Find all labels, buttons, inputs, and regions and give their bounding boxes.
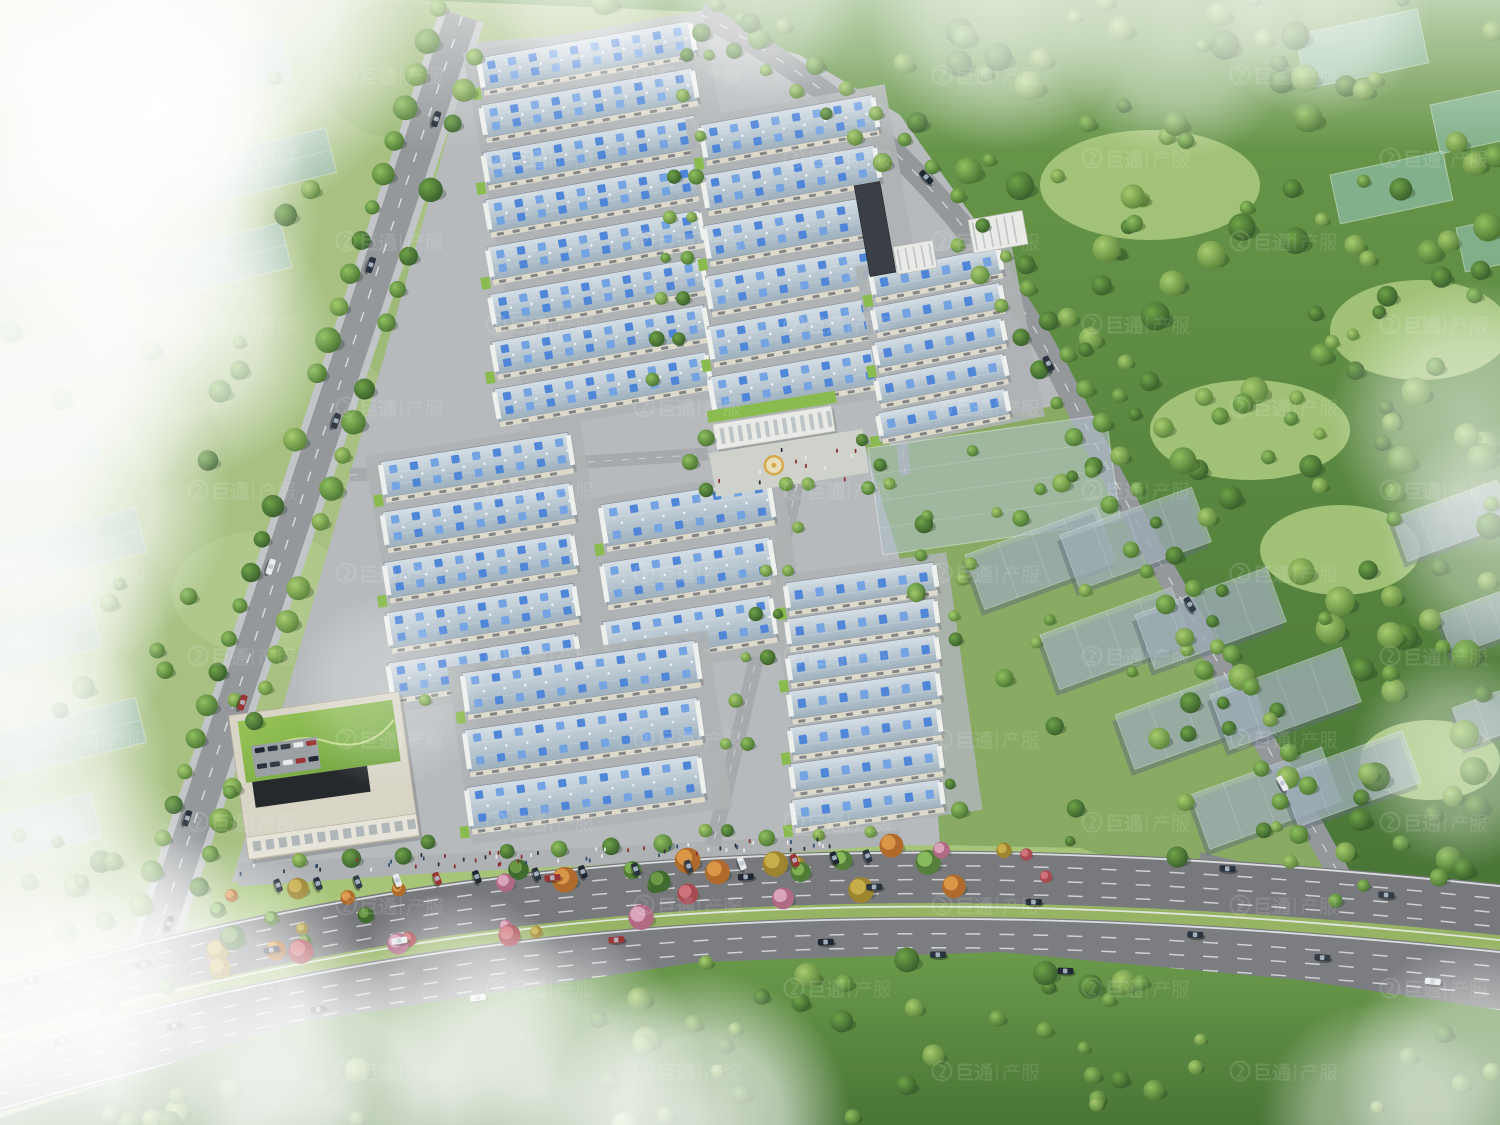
pedestrian (749, 839, 751, 843)
tree (894, 947, 919, 972)
pedestrian (819, 842, 821, 846)
watermark-suffix: 产服 (1152, 149, 1190, 171)
skylight (883, 759, 892, 769)
shopfront (330, 830, 339, 841)
skylight (536, 690, 545, 699)
skylight (540, 804, 549, 813)
skylight (513, 445, 522, 454)
skylight (783, 385, 792, 394)
tree (773, 609, 783, 619)
tree (1325, 586, 1355, 616)
tree (698, 430, 715, 447)
tree (1121, 184, 1145, 208)
skylight (754, 221, 763, 230)
pedestrian (687, 843, 689, 847)
skylight (409, 461, 418, 470)
tree (1078, 342, 1092, 356)
skylight (503, 358, 512, 367)
watermark-suffix: 产服 (1002, 564, 1040, 586)
skylight (519, 260, 528, 269)
watermark-brand: 巨通 (657, 232, 696, 254)
tree (1359, 250, 1376, 267)
skylight (760, 338, 769, 347)
tree (354, 379, 375, 400)
skylight (523, 388, 532, 397)
skylight (558, 205, 567, 214)
skylight (563, 606, 572, 615)
watermark-divider (550, 482, 552, 500)
skylight (599, 231, 608, 240)
skylight (735, 605, 744, 614)
skylight (521, 307, 530, 316)
tree (1084, 1067, 1101, 1084)
skylight (497, 515, 506, 524)
skylight (817, 176, 826, 185)
skylight (820, 277, 829, 286)
skylight (578, 684, 587, 693)
tree (1148, 728, 1170, 750)
watermark-suffix: 产服 (108, 1062, 146, 1084)
skylight (641, 190, 650, 199)
watermark-divider (1294, 67, 1296, 85)
watermark-brand: 巨通 (211, 979, 250, 1001)
tree (873, 458, 886, 471)
skylight (643, 271, 652, 280)
watermark-brand: 巨通 (61, 896, 100, 918)
skylight (900, 647, 909, 657)
skylight (737, 325, 746, 334)
watermark-brand: 巨通 (61, 66, 100, 88)
tree (686, 212, 697, 223)
tree (1046, 717, 1064, 735)
skylight (622, 275, 631, 284)
tree (1126, 215, 1143, 232)
skylight (555, 438, 564, 447)
pedestrian (736, 845, 738, 849)
tree (1012, 329, 1029, 346)
skylight (684, 264, 693, 273)
skylight (503, 391, 512, 400)
skylight (679, 646, 688, 655)
watermark-divider (550, 316, 552, 334)
tree (728, 693, 743, 708)
tree (1389, 178, 1412, 201)
skylight (794, 590, 803, 600)
skylight (560, 589, 569, 598)
skylight (919, 572, 928, 582)
skylight (686, 311, 695, 320)
skylight (515, 693, 524, 702)
skylight (588, 391, 597, 400)
skylight (967, 367, 977, 377)
watermark-divider (400, 67, 402, 85)
tree (758, 830, 775, 847)
skylight (840, 307, 849, 316)
watermark-suffix: 产服 (704, 1062, 742, 1084)
tree (646, 373, 660, 387)
cloud-fog (290, 590, 490, 790)
tree (991, 507, 1002, 518)
watermark-suffix: 产服 (258, 979, 296, 1001)
tree (856, 434, 868, 446)
tree (1222, 721, 1237, 736)
tree (1167, 846, 1188, 867)
skylight (493, 730, 502, 739)
skylight (492, 448, 501, 457)
tree (1050, 169, 1064, 183)
skylight (578, 235, 587, 244)
tree (682, 454, 699, 471)
pedestrian (787, 840, 789, 844)
pedestrian (463, 858, 465, 862)
pedestrian (743, 848, 745, 852)
tree (1211, 408, 1228, 425)
watermark-suffix: 产服 (1152, 481, 1190, 503)
watermark-suffix: 产服 (1450, 149, 1488, 171)
shopfront (317, 831, 326, 842)
skylight (542, 337, 551, 346)
tree (1176, 793, 1194, 811)
skylight (665, 787, 674, 796)
watermark-brand: 巨通 (359, 66, 398, 88)
watermark-divider (996, 897, 998, 915)
pedestrian (601, 854, 603, 858)
skylight (658, 649, 667, 658)
tree (1153, 417, 1174, 438)
watermark-suffix: 产服 (704, 232, 742, 254)
tree (1377, 622, 1403, 648)
tree (1123, 542, 1140, 559)
tree (1006, 172, 1035, 201)
watermark-suffix: 产服 (1450, 647, 1488, 669)
pedestrian (813, 844, 815, 848)
tree (1016, 255, 1035, 274)
skylight (757, 507, 766, 516)
skylight (921, 645, 930, 655)
watermark-brand: 巨通 (211, 813, 250, 835)
pedestrian (315, 864, 317, 868)
tree (1089, 1097, 1103, 1111)
watermark-divider (1444, 316, 1446, 334)
watermark-brand: 巨通 (1403, 149, 1442, 171)
skylight (902, 720, 911, 730)
watermark-brand: 巨通 (1105, 315, 1144, 337)
tree (602, 838, 620, 856)
skylight (629, 383, 638, 392)
skylight (666, 281, 675, 290)
watermark-brand: 巨通 (657, 398, 696, 420)
watermark-suffix: 产服 (1300, 730, 1338, 752)
watermark-suffix: 产服 (1152, 813, 1190, 835)
green-strip (373, 494, 384, 507)
watermark-divider (400, 565, 402, 583)
watermark-divider (102, 399, 104, 417)
skylight (477, 602, 486, 611)
pedestrian (805, 456, 807, 460)
skylight (624, 322, 633, 331)
skylight (495, 696, 504, 705)
skylight (841, 765, 850, 775)
watermark-suffix: 产服 (556, 149, 594, 171)
watermark-divider (996, 1063, 998, 1081)
pedestrian (499, 862, 501, 866)
skylight (986, 327, 996, 337)
skylight (941, 265, 951, 275)
skylight (505, 405, 514, 414)
skylight (581, 249, 590, 258)
pedestrian (521, 855, 523, 859)
skylight (752, 170, 761, 179)
skylight (457, 572, 466, 581)
skylight (620, 770, 629, 779)
watermark-brand: 巨通 (807, 481, 846, 503)
watermark-divider (1444, 150, 1446, 168)
pedestrian (803, 847, 805, 851)
skylight (537, 782, 546, 791)
skylight (516, 246, 525, 255)
skylight (650, 501, 659, 510)
skylight (523, 354, 532, 363)
pedestrian (795, 459, 797, 463)
skylight (609, 507, 618, 516)
skylight (565, 347, 574, 356)
pedestrian (658, 853, 660, 857)
tree (1242, 678, 1259, 695)
skylight (662, 764, 671, 773)
skylight (660, 707, 669, 716)
tree (1111, 1070, 1130, 1089)
tree (649, 331, 665, 347)
tree (1325, 335, 1339, 349)
skylight (661, 187, 670, 196)
skylight (824, 378, 833, 387)
watermark-brand: 巨通 (955, 564, 994, 586)
tree (1308, 306, 1324, 322)
tree (1165, 546, 1183, 564)
tree (1076, 380, 1095, 399)
watermark-brand: 巨通 (955, 66, 994, 88)
skylight (537, 458, 546, 467)
skylight (796, 180, 805, 189)
tree (994, 299, 1008, 313)
watermark-divider (848, 648, 850, 666)
skylight (580, 741, 589, 750)
watermark-brand: 巨通 (61, 730, 100, 752)
tree (1036, 1022, 1053, 1039)
skylight (560, 286, 569, 295)
skylight (557, 455, 566, 464)
watermark-divider (252, 150, 254, 168)
skylight (602, 245, 611, 254)
tree (830, 1010, 853, 1033)
skylight (686, 784, 695, 793)
watermark-brand: 巨通 (1253, 730, 1292, 752)
watermark-divider (1146, 648, 1148, 666)
skylight (435, 525, 444, 534)
skylight (599, 198, 608, 207)
tree (365, 200, 379, 214)
skylight (559, 505, 568, 514)
skylight (738, 292, 747, 301)
pedestrian (390, 860, 392, 864)
tree (1159, 270, 1185, 296)
skylight (620, 194, 629, 203)
watermark-suffix: 产服 (258, 813, 296, 835)
skylight (683, 761, 692, 770)
skylight (639, 710, 648, 719)
skylight (618, 180, 627, 189)
watermark-brand: 巨通 (61, 1062, 100, 1084)
watermark-brand: 巨通 (1403, 481, 1442, 503)
tree (660, 253, 670, 263)
skylight (412, 478, 421, 487)
skylight (620, 228, 629, 237)
pedestrian (643, 846, 645, 850)
skylight (899, 611, 908, 621)
skylight (798, 735, 807, 745)
car (818, 939, 837, 948)
skylight (514, 727, 523, 736)
watermark-suffix: 产服 (1450, 979, 1488, 1001)
tree (1272, 793, 1289, 810)
cloud-fog (340, 890, 580, 1125)
watermark-divider (102, 731, 104, 749)
skylight (638, 177, 647, 186)
tree (334, 447, 351, 464)
watermark-suffix: 产服 (1002, 66, 1040, 88)
pedestrian (735, 843, 737, 847)
skylight (514, 198, 523, 207)
watermark-brand: 巨通 (359, 398, 398, 420)
tree (1240, 201, 1254, 215)
watermark-divider (996, 233, 998, 251)
skylight (582, 798, 591, 807)
skylight (519, 293, 528, 302)
skylight (661, 672, 670, 681)
skylight (925, 789, 934, 799)
skylight (391, 515, 400, 524)
watermark-suffix: 产服 (704, 730, 742, 752)
tree (1315, 213, 1329, 227)
watermark-divider (550, 648, 552, 666)
tree (1050, 397, 1063, 410)
skylight (668, 362, 677, 371)
skylight (755, 543, 764, 552)
tree (1350, 657, 1374, 681)
skylight (391, 481, 400, 490)
tree (1175, 628, 1194, 647)
skylight (900, 273, 910, 283)
tree (1150, 517, 1162, 529)
watermark-divider (102, 897, 104, 915)
skylight (558, 539, 567, 548)
tree (1139, 371, 1159, 391)
watermark-suffix: 产服 (1300, 232, 1338, 254)
skylight (800, 365, 809, 374)
skylight (877, 578, 886, 588)
skylight (719, 346, 728, 355)
watermark-brand: 巨通 (1105, 647, 1144, 669)
watermark-brand: 巨通 (657, 730, 696, 752)
watermark-divider (400, 399, 402, 417)
watermark-brand: 巨通 (1403, 979, 1442, 1001)
skylight (411, 511, 420, 520)
tree (1312, 478, 1328, 494)
tree (1314, 428, 1326, 440)
skylight (863, 798, 872, 808)
tree (1012, 510, 1029, 527)
pedestrian (454, 864, 456, 868)
watermark-brand: 巨通 (955, 730, 994, 752)
watermark-brand: 巨通 (211, 315, 250, 337)
skylight (687, 278, 696, 287)
watermark-brand: 巨通 (657, 66, 696, 88)
tree (1020, 280, 1037, 297)
tree (377, 313, 396, 332)
watermark-brand: 巨通 (211, 149, 250, 171)
skylight (862, 762, 871, 772)
watermark-divider (252, 482, 254, 500)
skylight (497, 753, 506, 762)
tree (1283, 179, 1302, 198)
tree (186, 728, 206, 748)
watermark-divider (996, 731, 998, 749)
watermark-divider (1146, 980, 1148, 998)
pedestrian (557, 859, 559, 863)
tree (1078, 584, 1091, 597)
skylight (689, 325, 698, 334)
industrial-park-aerial-rendering: 巨通产服巨通产服巨通产服巨通产服巨通产服巨通产服巨通产服巨通产服巨通产服巨通产服… (0, 0, 1500, 1125)
skylight (414, 528, 423, 537)
skylight (432, 508, 441, 517)
watermark-brand: 巨通 (1253, 564, 1292, 586)
watermark-suffix: 产服 (1002, 730, 1040, 752)
tree (922, 1044, 944, 1066)
tree (312, 513, 330, 531)
tree (667, 170, 681, 184)
watermark-divider (698, 897, 700, 915)
skylight (608, 387, 617, 396)
tree (663, 210, 677, 224)
watermark-suffix: 产服 (1450, 813, 1488, 835)
skylight (579, 776, 588, 785)
skylight (839, 223, 848, 232)
pedestrian (752, 841, 754, 845)
pedestrian (669, 846, 671, 850)
tree (951, 801, 968, 818)
watermark-suffix: 产服 (704, 564, 742, 586)
skylight (795, 213, 804, 222)
watermark-suffix: 产服 (108, 398, 146, 420)
skylight (741, 393, 750, 402)
pedestrian (781, 448, 783, 452)
skylight (517, 750, 526, 759)
skylight (797, 698, 806, 708)
skylight (926, 375, 936, 385)
tree (655, 292, 668, 305)
skylight (857, 581, 866, 591)
watermark-suffix: 产服 (1002, 232, 1040, 254)
watermark-divider (550, 814, 552, 832)
skylight (632, 621, 641, 630)
skylight (535, 724, 544, 733)
tree (760, 564, 772, 576)
skylight (455, 555, 464, 564)
tree (1253, 761, 1269, 777)
skylight (689, 359, 698, 368)
skylight (534, 441, 543, 450)
shopfront (343, 828, 352, 839)
